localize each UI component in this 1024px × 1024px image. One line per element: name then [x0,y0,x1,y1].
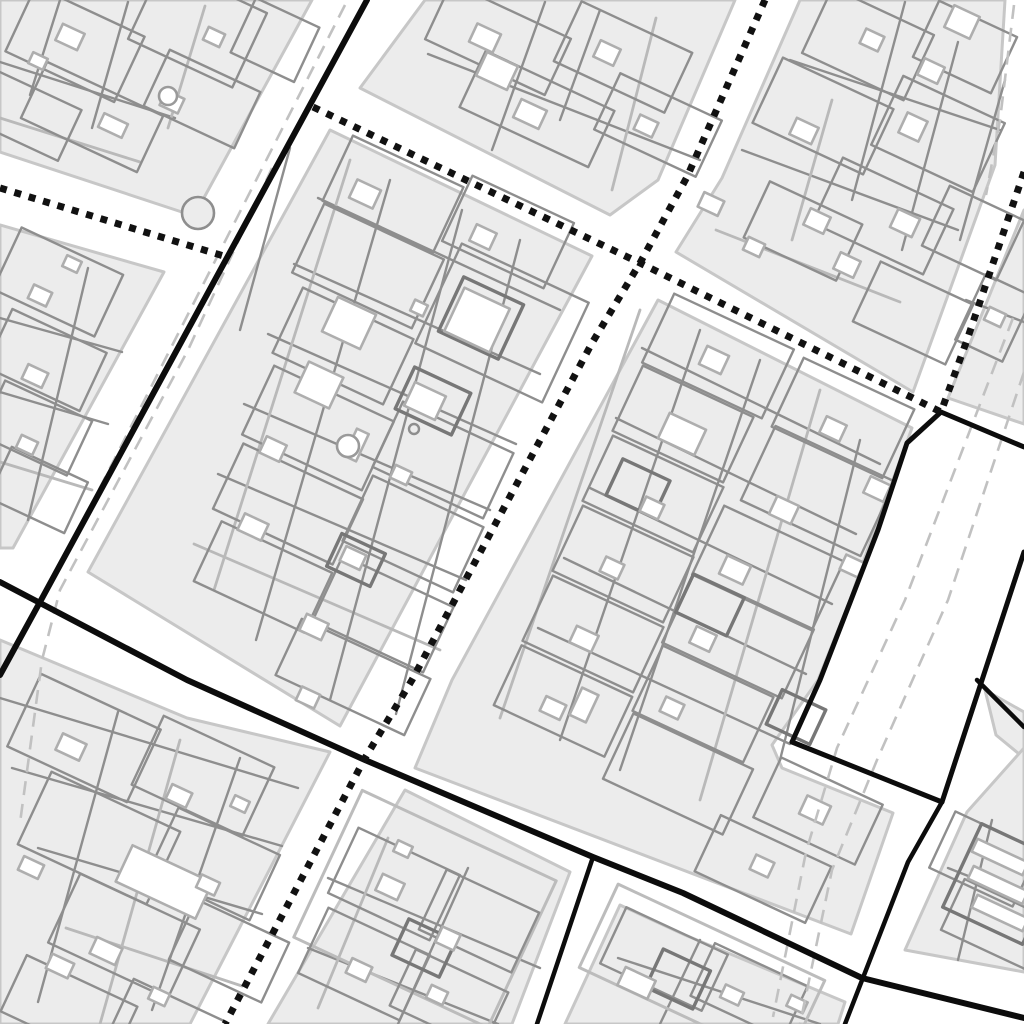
round-building [337,435,359,457]
round-building [159,87,177,105]
round-building [182,197,214,229]
map-viewport [0,0,1024,1024]
map-canvas[interactable] [0,0,1024,1024]
